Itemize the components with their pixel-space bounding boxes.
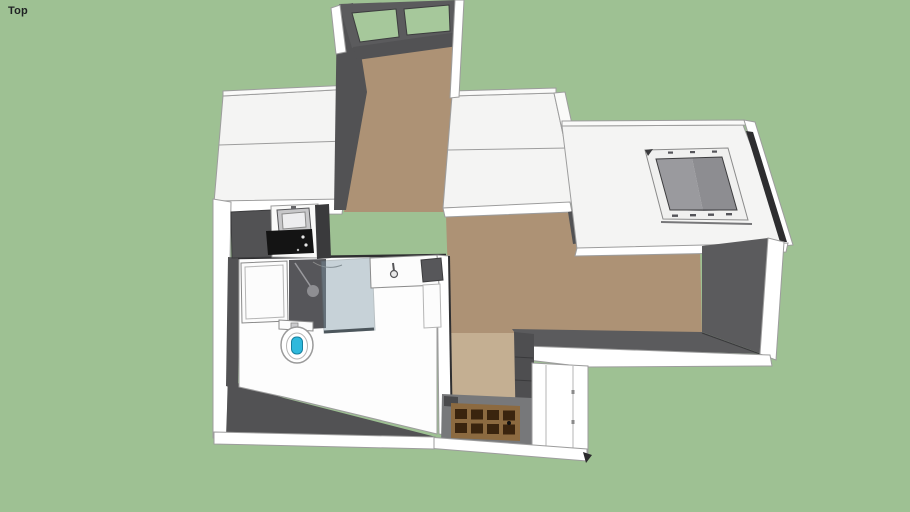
bathtub-panel [241, 261, 288, 323]
right-roof-north-parapet [562, 120, 746, 126]
shower-head [307, 285, 319, 297]
fridge-top [231, 210, 272, 258]
entry-wood-door [451, 403, 520, 441]
porch-front-door-white [532, 363, 588, 456]
mirror-cabinet-top [421, 258, 443, 282]
window-pane-right [404, 5, 450, 35]
kitchen-hall-wall [315, 204, 331, 259]
kitchen-sink [277, 206, 311, 232]
vanity-side-counter [423, 284, 441, 328]
window-pane-left [352, 9, 399, 42]
shower-walls [289, 259, 326, 330]
toilet [279, 320, 313, 363]
shower-glass-panel [321, 258, 375, 333]
view-orientation-label: Top [8, 5, 28, 17]
cooktop [266, 229, 314, 255]
left-roof [214, 89, 352, 203]
entry-hall-floor [450, 333, 521, 400]
3d-scene-canvas [0, 0, 910, 512]
faucet-stem [393, 263, 394, 271]
faucet-icon [391, 271, 398, 278]
bathroom-west-wall [226, 257, 240, 390]
toilet-water [292, 337, 303, 354]
door-knob [507, 421, 511, 425]
model-viewport[interactable]: Top [0, 0, 910, 512]
sink-tap [291, 206, 296, 209]
